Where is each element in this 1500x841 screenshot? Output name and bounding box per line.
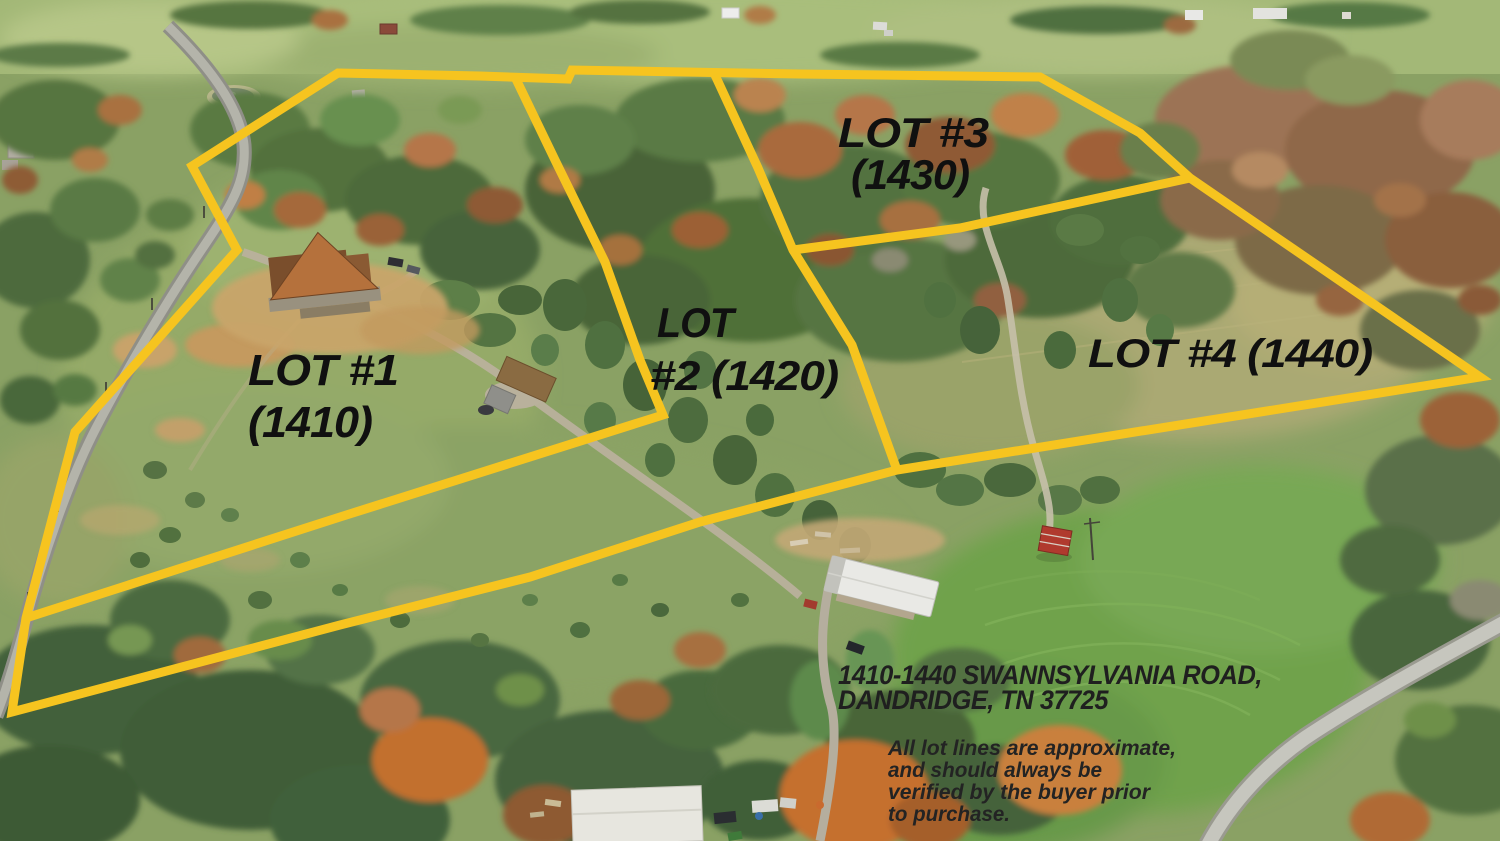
camper — [780, 797, 797, 809]
lot-3-label-line-2: (1430) — [851, 151, 969, 198]
distant-barn — [1185, 10, 1203, 20]
lot-2-label-line-1: LOT — [657, 299, 737, 346]
aerial-photo-stage: LOT #1 (1410) LOT #2 (1420) LOT #3 (1430… — [0, 0, 1500, 841]
distant-shed — [873, 22, 887, 31]
white-building — [571, 786, 703, 841]
distant-shed — [884, 30, 893, 36]
distant-red-barn — [380, 24, 397, 34]
disclaimer-line-3: verified by the buyer prior — [888, 781, 1152, 804]
address-line-2: DANDRIDGE, TN 37725 — [838, 685, 1109, 715]
lot-3-label-line-1: LOT #3 — [838, 109, 989, 156]
red-shed — [1036, 526, 1072, 562]
disclaimer-line-1: All lot lines are approximate, — [887, 737, 1176, 760]
dark-truck — [714, 811, 737, 824]
distant-white-house — [722, 8, 739, 18]
lot-1-label-line-2: (1410) — [248, 398, 372, 447]
lot-1-label-line-1: LOT #1 — [248, 346, 398, 395]
distant-barn — [1342, 12, 1351, 19]
aerial-photo: LOT #1 (1410) LOT #2 (1420) LOT #3 (1430… — [0, 0, 1500, 841]
disclaimer-line-4: to purchase. — [888, 803, 1010, 826]
disclaimer-line-2: and should always be — [888, 759, 1102, 782]
distant-barn — [1253, 8, 1287, 19]
camper — [752, 799, 779, 813]
blue-barrel — [755, 812, 763, 820]
orange-barrel — [816, 801, 824, 809]
lot-2-label-line-2: #2 (1420) — [650, 352, 838, 399]
lot-4-label: LOT #4 (1440) — [1088, 332, 1373, 376]
